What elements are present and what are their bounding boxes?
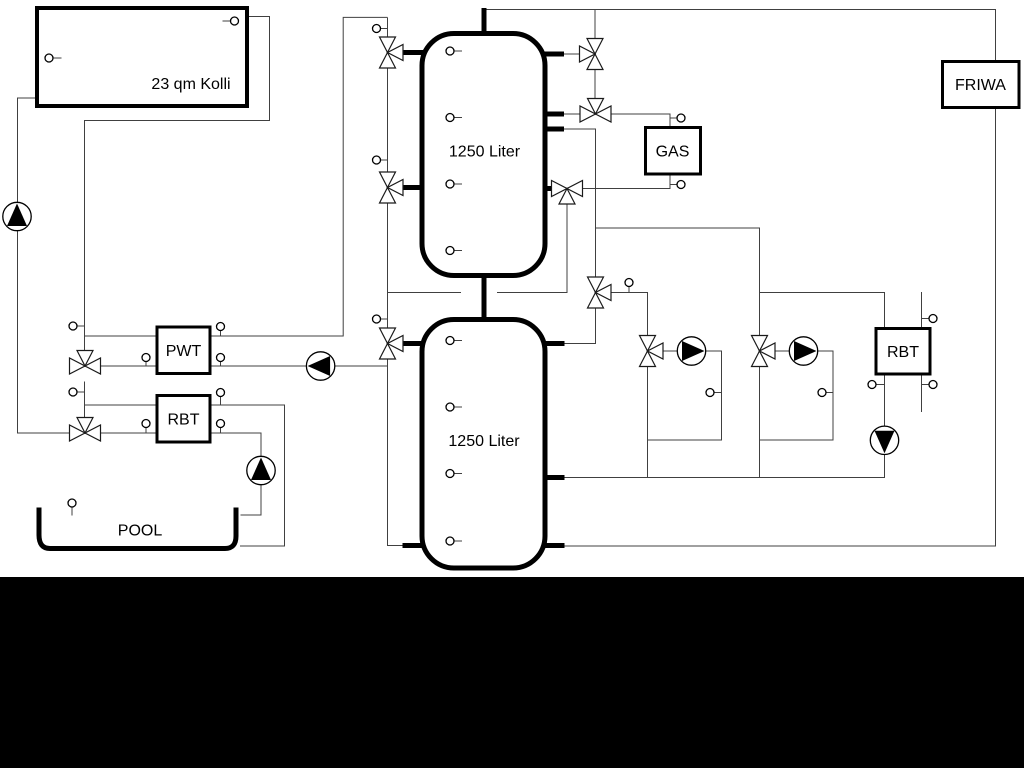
- svg-text:FRIWA: FRIWA: [955, 77, 1006, 94]
- svg-text:POOL: POOL: [118, 523, 163, 540]
- svg-text:RBT: RBT: [887, 344, 919, 361]
- svg-text:1250 Liter: 1250 Liter: [448, 433, 520, 450]
- svg-text:23 qm Kolli: 23 qm Kolli: [151, 76, 230, 93]
- svg-text:GAS: GAS: [656, 144, 690, 161]
- svg-text:RBT: RBT: [168, 412, 200, 429]
- svg-text:PWT: PWT: [166, 343, 202, 360]
- svg-text:1250 Liter: 1250 Liter: [449, 144, 521, 161]
